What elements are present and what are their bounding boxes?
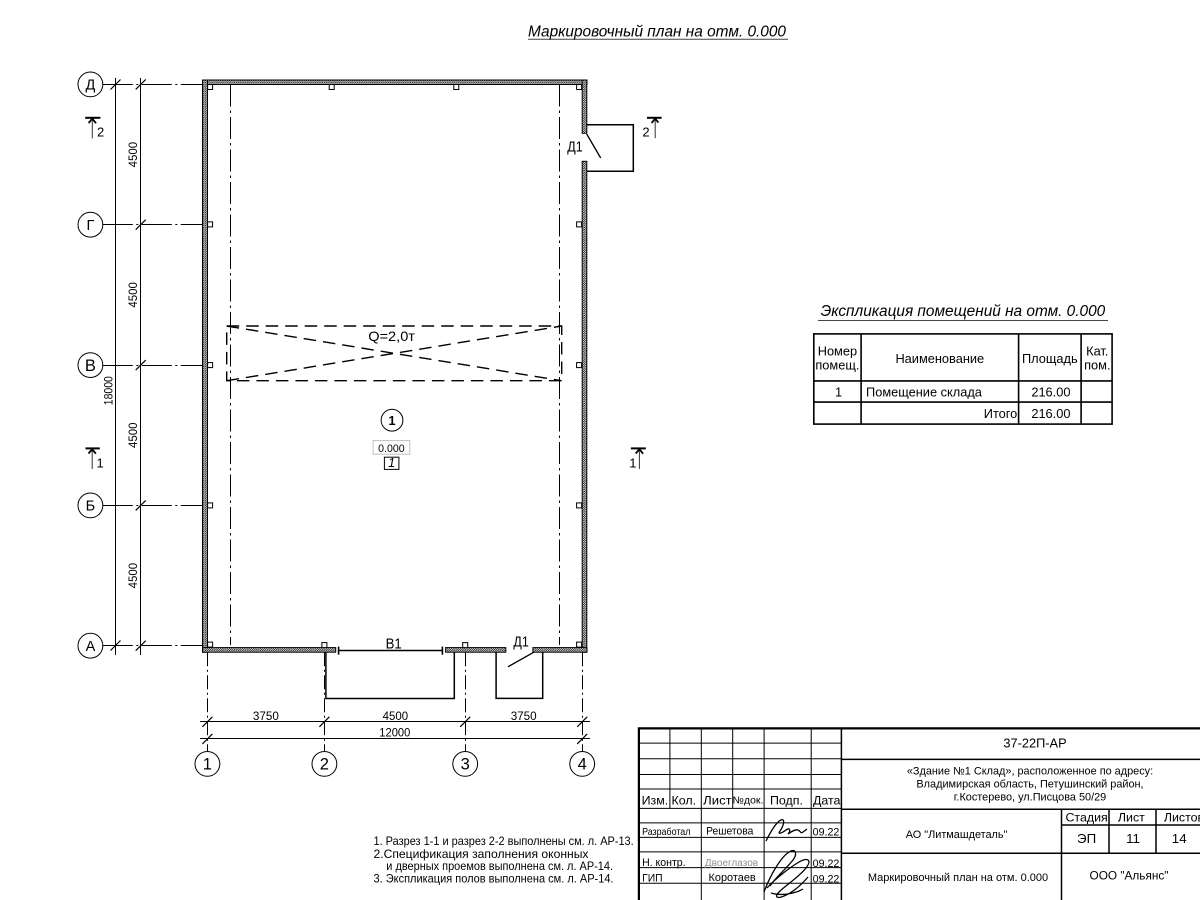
svg-text:Лист: Лист [703,793,732,807]
svg-text:Маркировочный план на отм. 0.0: Маркировочный план на отм. 0.000 [528,23,786,40]
svg-text:АО "Литмашдеталь": АО "Литмашдеталь" [906,829,1008,841]
svg-text:Наименование: Наименование [895,351,984,366]
svg-text:216.00: 216.00 [1031,406,1070,421]
svg-text:37-22П-АР: 37-22П-АР [1003,736,1066,751]
svg-text:1: 1 [388,456,395,470]
svg-text:ООО "Альянс": ООО "Альянс" [1090,868,1169,882]
svg-text:Q=2,0т: Q=2,0т [368,329,415,344]
svg-text:Кат.: Кат. [1086,344,1108,359]
svg-text:Н. контр.: Н. контр. [642,857,686,869]
svg-text:помещ.: помещ. [815,358,859,373]
svg-text:Изм.: Изм. [642,793,669,807]
svg-text:Кол.: Кол. [672,793,697,807]
svg-text:Помещение склада: Помещение склада [866,384,983,399]
svg-text:3750: 3750 [253,709,279,723]
svg-text:2: 2 [97,125,104,140]
svg-text:г.Костерево, ул.Писцова 50/29: г.Костерево, ул.Писцова 50/29 [954,791,1106,803]
svg-text:1: 1 [389,414,396,428]
svg-text:Б: Б [86,499,96,515]
svg-text:09.22: 09.22 [813,858,840,870]
svg-text:216.00: 216.00 [1031,384,1070,399]
svg-text:Разработал: Разработал [642,826,690,838]
svg-text:3. Экспликация полов выполнена: 3. Экспликация полов выполнена см. л. АР… [374,872,614,886]
svg-text:Номер: Номер [818,344,857,359]
svg-text:18000: 18000 [102,376,116,405]
svg-text:Итого: Итого [984,406,1018,421]
svg-text:Двоеглазов: Двоеглазов [705,857,759,869]
svg-text:№док.: №док. [733,795,764,806]
svg-text:Дата: Дата [813,793,841,807]
svg-text:Д: Д [85,78,95,94]
svg-text:Подп.: Подп. [770,793,803,807]
svg-text:09.22: 09.22 [813,873,840,885]
svg-text:4500: 4500 [126,282,140,308]
svg-text:Лист: Лист [1118,810,1145,824]
svg-text:Стадия: Стадия [1065,810,1107,824]
svg-text:12000: 12000 [379,725,410,739]
svg-text:ГИП: ГИП [642,872,663,884]
svg-text:4: 4 [578,756,587,774]
svg-text:«Здание №1 Склад», расположенн: «Здание №1 Склад», расположенное по адре… [907,766,1153,778]
svg-text:4500: 4500 [126,422,140,448]
svg-text:2: 2 [320,756,329,774]
svg-text:14: 14 [1172,831,1187,846]
svg-text:В: В [85,357,96,375]
svg-text:А: А [86,639,96,655]
svg-text:2: 2 [642,125,649,140]
svg-text:Владимирская область, Петушинс: Владимирская область, Петушинский район, [916,779,1143,791]
svg-text:4500: 4500 [383,709,409,723]
svg-text:пом.: пом. [1084,358,1110,373]
svg-text:4500: 4500 [126,563,140,589]
svg-text:Решетова: Решетова [706,826,754,838]
svg-text:Д1: Д1 [567,139,582,155]
svg-text:Листов: Листов [1164,810,1200,824]
svg-text:0.000: 0.000 [378,443,405,455]
svg-text:3: 3 [461,756,470,774]
svg-text:ЭП: ЭП [1077,831,1096,846]
svg-text:4500: 4500 [126,142,140,168]
svg-text:1: 1 [203,756,212,774]
svg-text:1: 1 [97,456,104,471]
svg-text:1: 1 [835,384,842,399]
svg-text:Коротаев: Коротаев [709,872,756,884]
svg-text:1: 1 [629,455,636,470]
svg-text:11: 11 [1126,831,1140,846]
svg-text:3750: 3750 [511,709,537,723]
svg-text:Г: Г [86,218,94,234]
svg-text:В1: В1 [386,636,402,652]
svg-text:09.22: 09.22 [813,827,840,839]
svg-text:Д1: Д1 [513,635,528,651]
svg-text:Маркировочный план на отм. 0.0: Маркировочный план на отм. 0.000 [868,872,1048,884]
svg-text:Экспликация помещений на отм.: Экспликация помещений на отм. 0.000 [821,303,1106,320]
svg-text:Площадь: Площадь [1022,351,1078,366]
